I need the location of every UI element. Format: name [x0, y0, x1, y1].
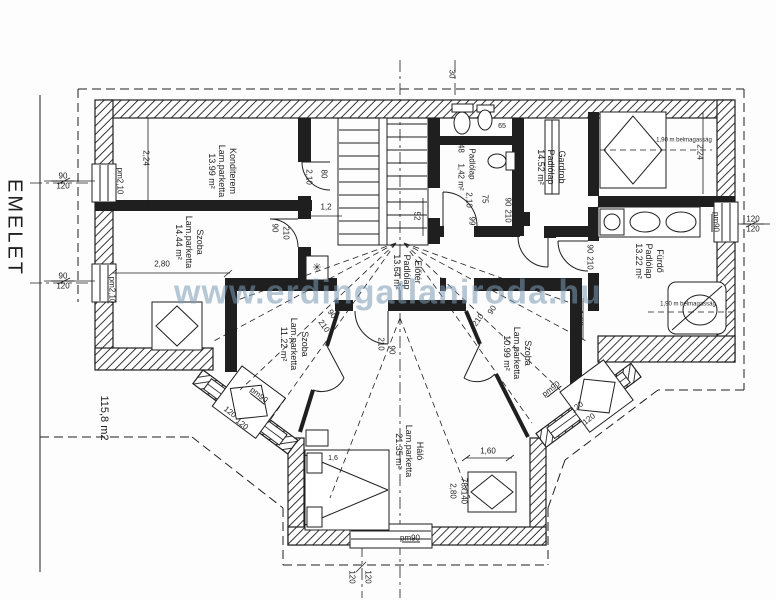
washer-icon — [600, 209, 624, 235]
bidet-icon — [477, 105, 494, 130]
double-bed-icon — [305, 430, 389, 530]
toilet-icon — [488, 152, 515, 170]
slanted-walls — [300, 311, 528, 437]
crib-icon — [468, 472, 516, 512]
staircase — [338, 118, 428, 245]
floorplan-page: EMELET 115,8 m2 90120 90120 120120 pm2,1… — [0, 0, 776, 600]
toilet-icon — [452, 104, 473, 134]
watermark: www.erdingatlaniroda.hu — [174, 274, 602, 313]
